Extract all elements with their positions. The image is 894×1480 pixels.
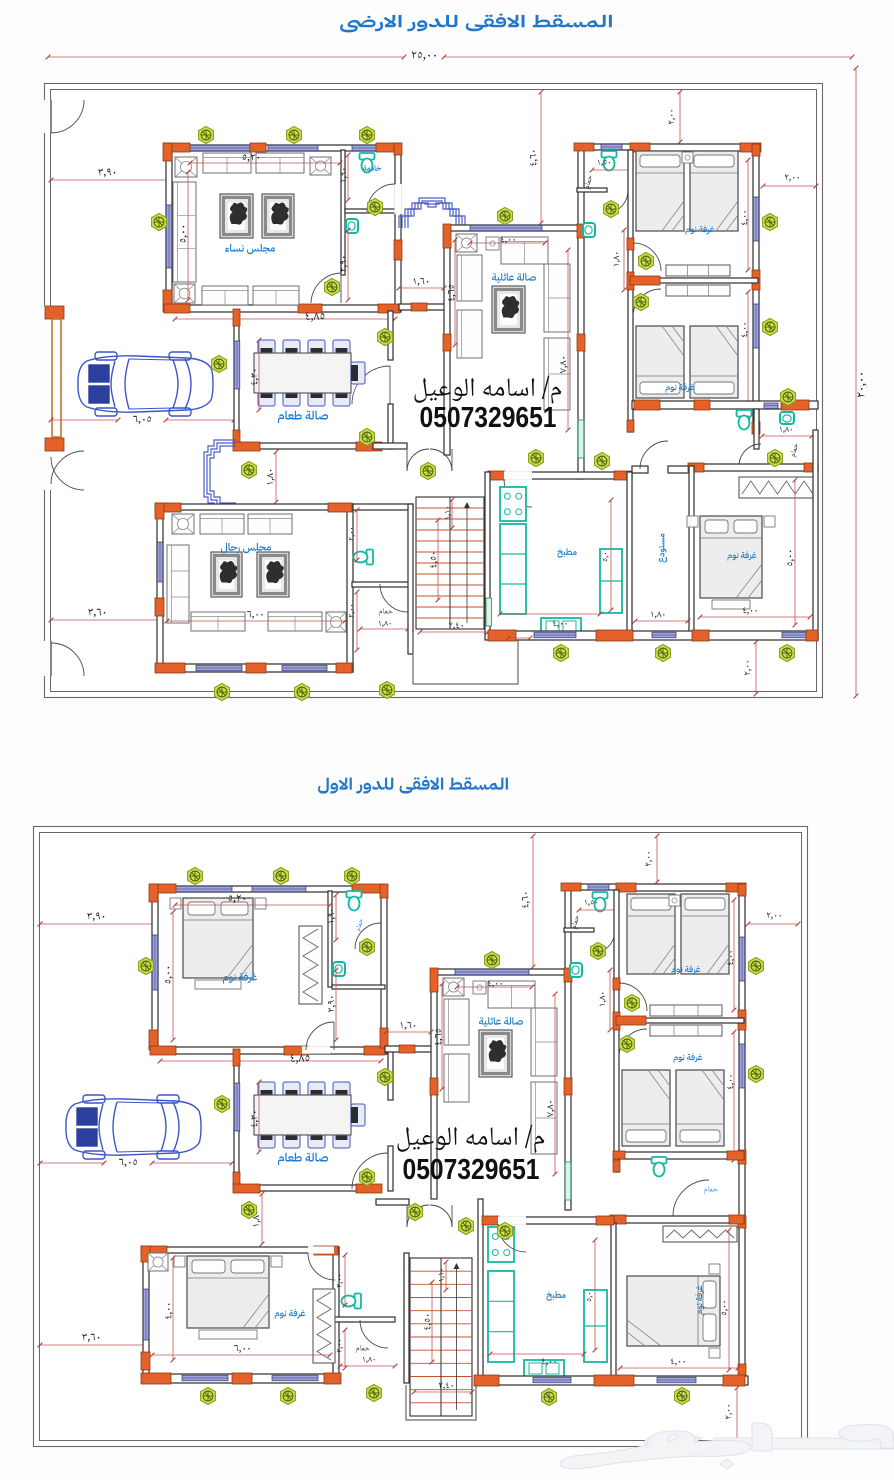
svg-text:0507329651: 0507329651 [403, 1154, 540, 1186]
svg-text:0507329651: 0507329651 [420, 402, 557, 434]
